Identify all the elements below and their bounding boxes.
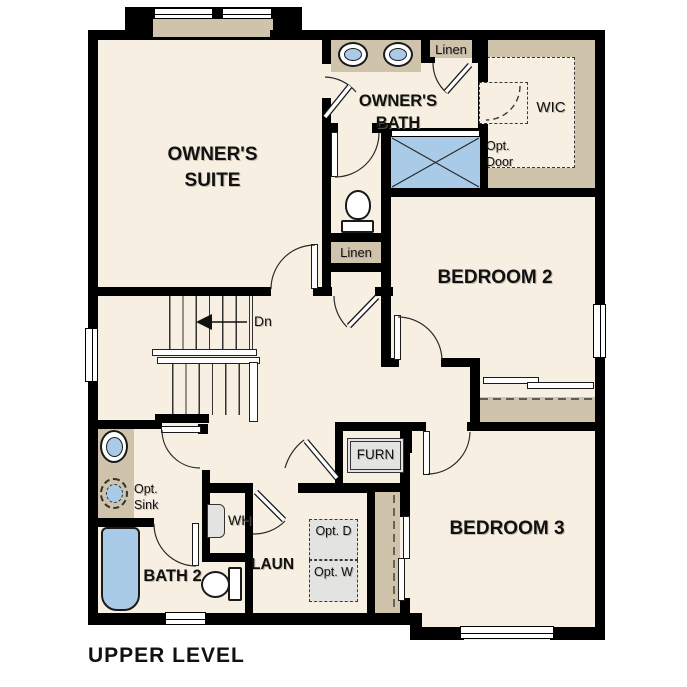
- stairs-upper-flight: [157, 295, 253, 350]
- wc-toilet-bowl: [345, 190, 371, 220]
- stairs-down-label: Dn: [254, 313, 272, 329]
- plan-title: UPPER LEVEL: [88, 644, 245, 668]
- wall-suite-bottom: [88, 287, 271, 296]
- wall-linen1-lip: [421, 57, 435, 63]
- wall-y422-right: [467, 422, 605, 431]
- wall-left-lower: [88, 381, 98, 625]
- wall-top-right: [270, 30, 605, 40]
- bath-sink-1-basin: [344, 48, 362, 61]
- wall-laun-top: [206, 483, 247, 493]
- owners-suite-door: [311, 244, 318, 289]
- bath2-opt-sink-basin: [106, 484, 123, 503]
- wc-toilet-tank: [341, 220, 374, 233]
- wall-linen-shelf-bottom: [322, 263, 391, 272]
- window-left: [85, 328, 98, 382]
- wall-furn-left: [335, 422, 343, 484]
- wall-right-lower: [595, 355, 605, 638]
- window-bedroom3: [460, 626, 554, 639]
- wall-bottom-bed3-left: [410, 627, 464, 640]
- opt-washer-label: Opt. W: [311, 565, 356, 580]
- wall-suite-right-upper: [322, 30, 331, 64]
- bedroom2-label: BEDROOM 2: [395, 267, 595, 289]
- bedroom3-door: [423, 431, 430, 475]
- wall-bed2-closet-left: [470, 358, 480, 431]
- bedroom2-door: [394, 315, 401, 360]
- wic-label: WIC: [523, 99, 579, 116]
- bedroom3-closet-shelf: [375, 492, 400, 613]
- opt-door-label: Opt. Door: [486, 139, 530, 170]
- wall-bath2-top: [88, 518, 154, 527]
- stairs-lower-flight: [160, 364, 249, 415]
- wall-left-upper: [88, 30, 98, 330]
- linen-hall-label: Linen: [331, 245, 381, 260]
- wic-opt-door-outline: [479, 82, 528, 124]
- bath2-label: BATH 2: [140, 566, 205, 586]
- wall-linen1-right: [472, 30, 488, 63]
- wall-bed3-closet-top: [367, 483, 410, 492]
- bath2-sink-basin: [106, 437, 123, 457]
- opt-sink-label: Opt. Sink: [134, 482, 176, 513]
- laundry-label: LAUN: [251, 556, 294, 574]
- wall-laun-left: [245, 483, 253, 613]
- wall-wh-bottom: [202, 553, 253, 562]
- window-bath2: [165, 612, 206, 625]
- wall-bottom-left: [88, 613, 170, 625]
- opt-dryer-label: Opt. D: [311, 524, 356, 539]
- owners-bath-label: OWNER'S BATH: [338, 90, 458, 134]
- window-bedroom2: [593, 304, 606, 358]
- wall-bottom-bed3-right: [550, 627, 605, 640]
- bath2-toilet-bowl: [201, 571, 230, 598]
- wall-vestibule-top: [88, 420, 162, 429]
- shower-pan: [391, 137, 480, 188]
- bedroom2-closet-shelf: [480, 397, 595, 422]
- water-heater-label: WH: [228, 512, 251, 528]
- bedroom3-closet-slider-2: [398, 558, 405, 601]
- linen-bath-label: Linen: [430, 42, 472, 57]
- wc-door: [331, 132, 338, 177]
- wall-bottom-mid: [204, 613, 420, 625]
- bedroom2-closet-slider-2: [527, 382, 594, 389]
- bathtub: [101, 527, 140, 611]
- owners-suite-label: OWNER'S SUITE: [150, 142, 275, 194]
- water-heater-unit: [207, 504, 225, 538]
- wall-stairs-bottom: [155, 414, 209, 423]
- bay-window-left: [154, 8, 213, 19]
- bath2-toilet-tank: [228, 567, 242, 601]
- bay-window-sill: [153, 19, 273, 37]
- wall-laun-top-right: [298, 483, 372, 493]
- bay-window-right: [222, 8, 272, 19]
- stairs-rail-lower: [157, 357, 260, 364]
- wall-linen-shelf-top: [322, 233, 391, 242]
- wall-right-upper: [595, 30, 605, 307]
- wall-laun-closet-divider: [367, 483, 375, 613]
- floor-plan: OWNER'S SUITE OWNER'S BATH BEDROOM 2 BED…: [0, 0, 687, 687]
- stairs-rail-upper: [152, 349, 257, 356]
- wall-y422-left: [335, 422, 426, 431]
- vestibule-door: [161, 426, 201, 433]
- furnace-label: FURN: [347, 447, 404, 462]
- bedroom3-label: BEDROOM 3: [407, 518, 607, 540]
- bath2-door: [192, 523, 199, 566]
- stairs-half-wall: [249, 362, 258, 422]
- bath-sink-2-basin: [389, 48, 407, 61]
